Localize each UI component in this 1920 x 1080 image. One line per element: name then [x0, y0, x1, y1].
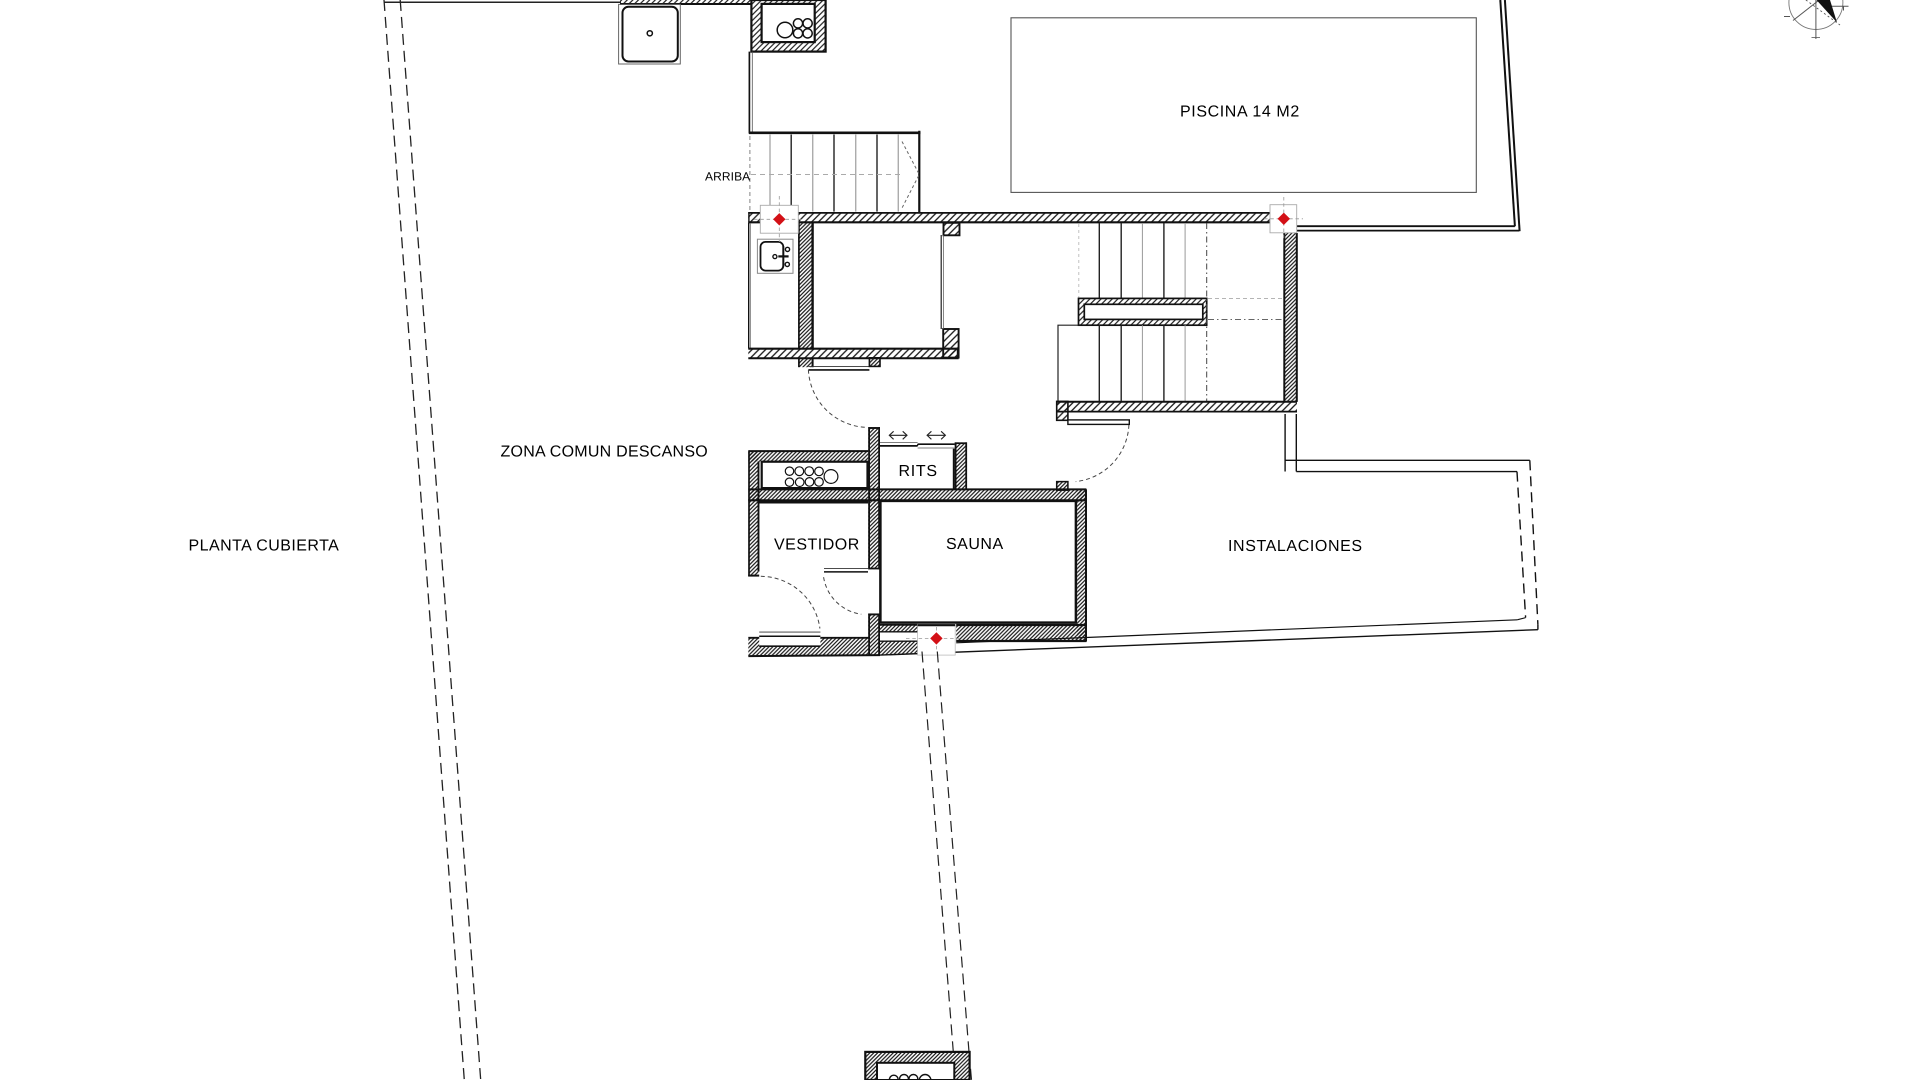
svg-text:ZONA COMUN DESCANSO: ZONA COMUN DESCANSO	[501, 444, 708, 461]
svg-text:PISCINA 14 M2: PISCINA 14 M2	[1180, 104, 1300, 121]
svg-text:PLANTA CUBIERTA: PLANTA CUBIERTA	[189, 538, 340, 555]
svg-text:ARRIBA: ARRIBA	[705, 169, 750, 183]
svg-text:SAUNA: SAUNA	[946, 536, 1004, 553]
svg-text:VESTIDOR: VESTIDOR	[774, 537, 860, 554]
svg-text:INSTALACIONES: INSTALACIONES	[1228, 538, 1363, 555]
svg-text:RITS: RITS	[899, 463, 938, 480]
